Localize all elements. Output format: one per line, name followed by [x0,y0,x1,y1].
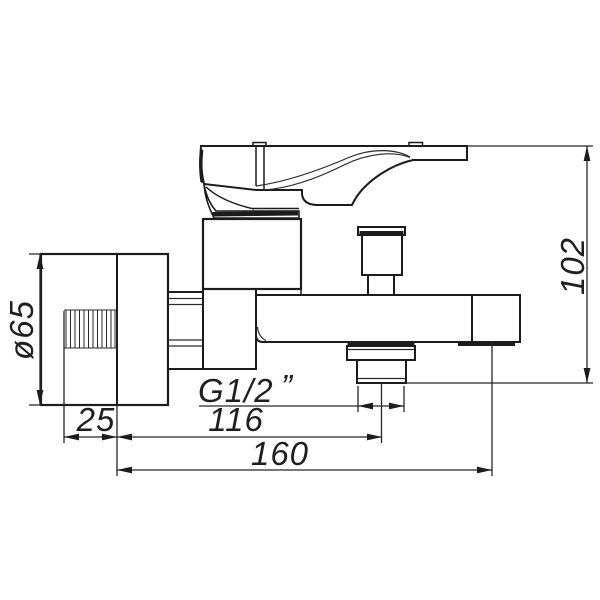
shower-outlet [347,342,415,383]
outlet-top-band [348,342,415,347]
lever-handle [201,143,467,210]
dimension-total-height: 102 [406,146,593,383]
spout-outline [256,295,520,342]
wall-flange [41,254,168,405]
dim-102-label: 102 [554,237,591,295]
dimension-flange-diameter: ø65 [3,254,43,405]
lever-neck-silhouette [206,187,254,209]
lever-outline [201,146,467,205]
diverter-knob [358,227,405,296]
arrowhead-up [584,146,591,161]
arrowhead-left [358,403,373,410]
arrowhead-left [117,467,132,474]
arrowhead-right [367,434,382,441]
dim-65-label: ø65 [3,300,40,360]
connector-nut [168,292,203,369]
thread-label: G1/2 [198,372,274,409]
knob-body [362,235,402,275]
knob-stem [368,275,394,296]
aerator-strip [458,342,515,347]
arrowhead-right [477,467,492,474]
dim-25-label: 25 [76,401,116,438]
arrowhead-left [117,434,132,441]
outlet-nut [347,346,415,360]
dim-160-label: 160 [251,435,309,472]
arrowhead-right [389,403,404,410]
spout [256,295,520,346]
nut-outline [168,292,203,369]
outlet-thread-cylinder [357,360,406,383]
flange-outline [41,254,168,405]
thread-inch-mark: ” [281,368,294,405]
lower-housing [203,289,256,369]
lever-butt-edge [201,151,202,181]
faucet-technical-drawing: ø65 102 25 116 160 G1/2 ” [0,0,600,600]
arrowhead-down [584,368,591,383]
technical-drawing-canvas: ø65 102 25 116 160 G1/2 ” [0,0,600,600]
cartridge-body [203,219,301,289]
